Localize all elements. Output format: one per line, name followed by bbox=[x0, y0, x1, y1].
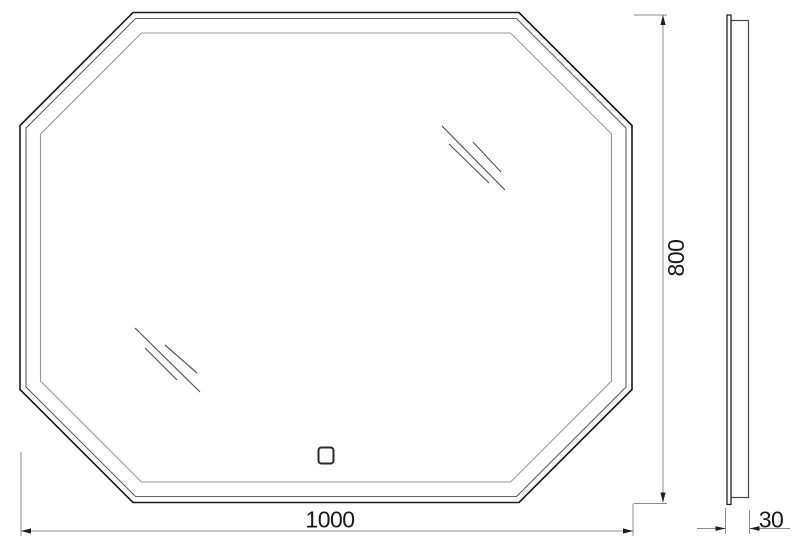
arrowhead-right-icon bbox=[623, 528, 633, 533]
arrowhead-left-icon bbox=[21, 528, 31, 533]
touch-sensor-button-icon bbox=[319, 448, 334, 464]
depth-dimension: 30 bbox=[697, 507, 790, 535]
height-dimension: 800 bbox=[634, 15, 689, 504]
arrowhead-down-icon bbox=[660, 493, 665, 503]
side-view-body-outline bbox=[731, 21, 749, 498]
mirror-technical-drawing: 1000 800 30 bbox=[0, 0, 800, 548]
height-dimension-value: 800 bbox=[663, 240, 689, 277]
front-view bbox=[20, 13, 632, 503]
width-dimension-value: 1000 bbox=[305, 507, 354, 533]
mirror-outer-outline bbox=[20, 13, 632, 503]
depth-dimension-value: 30 bbox=[759, 507, 784, 533]
side-view bbox=[727, 15, 749, 505]
arrowhead-up-icon bbox=[660, 15, 665, 25]
technical-drawing-page: 1000 800 30 bbox=[0, 0, 800, 548]
side-view-glass-panel bbox=[727, 15, 731, 505]
arrowhead-right-icon bbox=[716, 526, 726, 531]
